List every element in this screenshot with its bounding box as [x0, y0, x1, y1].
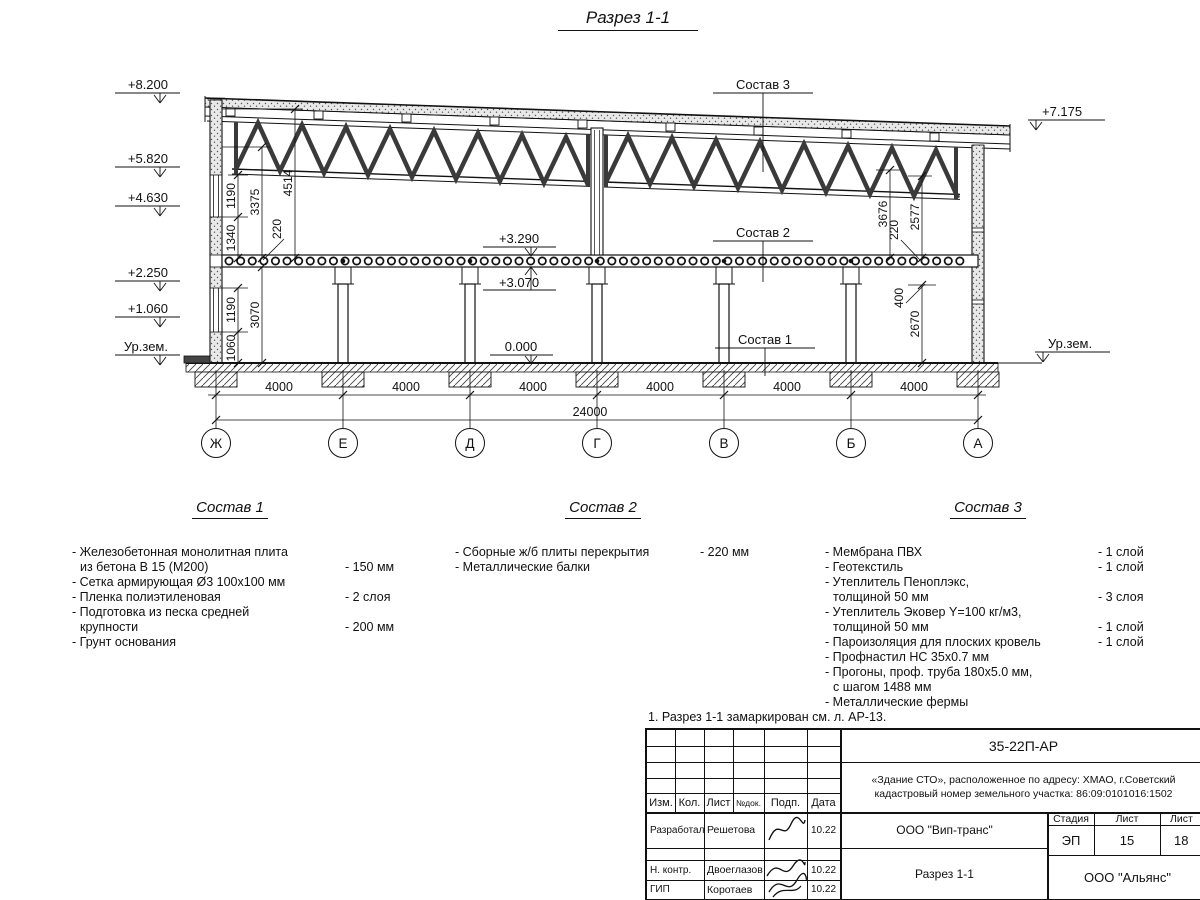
dim-label: 3375 [248, 188, 262, 215]
list-item: - Профнастил НС 35x0.7 мм [825, 650, 1156, 665]
axis-label: Б [847, 436, 856, 451]
tb-object: «Здание СТО», расположенное по адресу: Х… [842, 762, 1200, 812]
span-dim: 4000 [519, 380, 547, 394]
tb-role: Н. контр. [648, 860, 706, 880]
callout-label: Состав 2 [736, 225, 790, 240]
tb-drawing-name: Разрез 1-1 [842, 848, 1047, 899]
elevation-label: +7.175 [1042, 104, 1082, 119]
tb-date: 10.22 [807, 880, 840, 899]
dim-label: 400 [892, 288, 906, 308]
dim-label: 3070 [248, 301, 262, 328]
dim-label: 2577 [908, 203, 922, 230]
axis-label: Ж [210, 436, 223, 451]
elevation-label: +1.060 [128, 301, 168, 316]
tb-col-ndok: №док. [733, 793, 764, 812]
tb-sheets-value: 18 [1160, 825, 1200, 855]
tb-sheet-value: 15 [1094, 825, 1160, 855]
tb-sheet-label: Лист [1094, 812, 1160, 825]
tb-date: 10.22 [807, 812, 840, 848]
tb-org-bottom: ООО "Альянс" [1048, 855, 1200, 899]
tb-role: Разработал [648, 812, 706, 848]
axis-label: Е [338, 436, 347, 451]
list-item: - Пароизоляция для плоских кровель - 1 с… [825, 635, 1156, 650]
left-wall [207, 99, 225, 364]
floor-slab [222, 255, 978, 267]
signature-icon [763, 858, 808, 899]
sheet-note: 1. Разрез 1-1 замаркирован см. л. АР-13. [648, 710, 886, 724]
ground-floor-columns [338, 284, 856, 363]
callout-label: Состав 3 [736, 77, 790, 92]
dim-label: 4514 [281, 169, 295, 196]
elevation-marks-left [115, 93, 180, 365]
tb-col-data: Дата [807, 793, 840, 812]
list-item: - Подготовка из песка среднейкрупности -… [72, 605, 400, 635]
list-item: - Мембрана ПВХ - 1 слой [825, 545, 1156, 560]
list-item: - Сборные ж/б плиты перекрытия - 220 мм [455, 545, 758, 560]
tb-stage-label: Стадия [1048, 812, 1094, 825]
list-item: - Сетка армирующая Ø3 100x100 мм [72, 575, 400, 590]
dim-label: 1340 [224, 224, 238, 251]
signature-icon [765, 814, 807, 846]
elevation-marks-right [1028, 120, 1110, 362]
list-item: - Пленка полиэтиленовая - 2 слоя [72, 590, 400, 605]
dim-label: 220 [887, 220, 901, 240]
dim-label: 1060 [224, 334, 238, 361]
total-dim: 24000 [573, 405, 608, 419]
tb-name: Коротаев [705, 880, 766, 899]
elevation-label: +5.820 [128, 151, 168, 166]
list-item: - Геотекстиль - 1 слой [825, 560, 1156, 575]
dim-label: 220 [270, 219, 284, 239]
span-dim: 4000 [265, 380, 293, 394]
composition-2: Состав 2 - Сборные ж/б плиты перекрытия … [448, 500, 758, 575]
elevation-label: +8.200 [128, 77, 168, 92]
tb-org-mid: ООО "Вип-транс" [842, 812, 1047, 848]
tb-name: Решетова [705, 812, 766, 848]
title-block: Изм. Кол. Лист №док. Подп. Дата Разработ… [645, 728, 1200, 900]
list-item: - Железобетонная монолитная плитаиз бето… [72, 545, 400, 575]
elevation-label: +2.250 [128, 265, 168, 280]
dim-label: 2670 [908, 310, 922, 337]
span-dim: 4000 [392, 380, 420, 394]
section-drawing: +8.200 +5.820 +4.630 +2.250 +1.060 Ур.зе… [0, 0, 1200, 480]
tb-col-izm: Изм. [647, 793, 675, 812]
list-item: - Прогоны, проф. труба 180x5.0 мм,с шаго… [825, 665, 1156, 695]
right-wall [972, 145, 984, 363]
elevation-label: 0.000 [505, 339, 538, 354]
composition-1-title: Состав 1 [60, 500, 400, 515]
axis-label: Д [465, 436, 474, 451]
elevation-label: +3.290 [499, 231, 539, 246]
drawing-sheet: Разрез 1-1 [0, 0, 1200, 900]
elevation-label: Ур.зем. [124, 339, 168, 354]
elevation-label: Ур.зем. [1048, 336, 1092, 351]
dim-label: 1190 [224, 297, 238, 323]
span-dim: 4000 [646, 380, 674, 394]
tb-sheets-label: Лист [1160, 812, 1200, 825]
elevation-label: +3.070 [499, 275, 539, 290]
elevation-label: +4.630 [128, 190, 168, 205]
tb-col-kol: Кол. [675, 793, 704, 812]
callout-label: Состав 1 [738, 332, 792, 347]
tb-name: Двоеглазов [705, 860, 766, 880]
span-dim: 4000 [773, 380, 801, 394]
tb-col-podp: Подп. [764, 793, 807, 812]
tb-col-list: Лист [704, 793, 733, 812]
span-dim: 4000 [900, 380, 928, 394]
tb-doc-number: 35-22П-АР [842, 730, 1200, 762]
dim-label: 1190 [224, 183, 238, 209]
list-item: - Утеплитель Пеноплэкс,толщиной 50 мм - … [825, 575, 1156, 605]
axis-label: В [719, 436, 728, 451]
composition-2-title: Состав 2 [448, 500, 758, 515]
tb-stage-value: ЭП [1048, 825, 1094, 855]
composition-1: Состав 1 - Железобетонная монолитная пли… [60, 500, 400, 650]
axis-label: Г [593, 436, 601, 451]
dimension-lines-vertical [222, 109, 936, 363]
axis-label: А [973, 436, 982, 451]
tb-date: 10.22 [807, 860, 840, 880]
middle-column [591, 128, 603, 255]
floor-beams [332, 267, 862, 284]
tb-role: ГИП [648, 880, 706, 899]
composition-3-title: Состав 3 [820, 500, 1156, 515]
list-item: - Грунт основания [72, 635, 400, 650]
list-item: - Металлические балки [455, 560, 758, 575]
composition-3: Состав 3 - Мембрана ПВХ - 1 слой - Геоте… [820, 500, 1156, 710]
list-item: - Металлические фермы [825, 695, 1156, 710]
list-item: - Утеплитель Эковер Y=100 кг/м3,толщиной… [825, 605, 1156, 635]
